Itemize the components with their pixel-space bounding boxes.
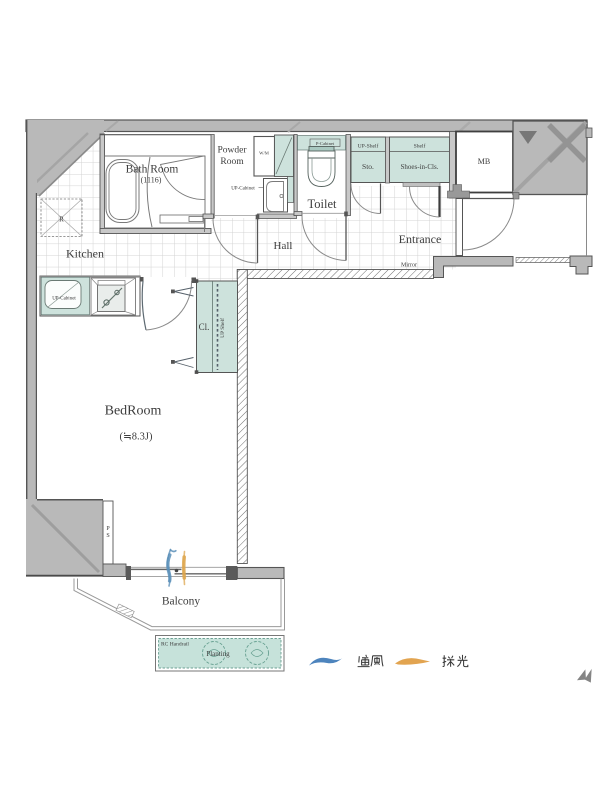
svg-text:Balcony: Balcony [162,596,201,608]
svg-text:(≒8.3J): (≒8.3J) [119,432,153,443]
svg-text:Powder: Powder [217,146,247,156]
svg-text:UP-Cabinet: UP-Cabinet [231,187,255,192]
svg-text:Shelf: Shelf [414,143,426,150]
svg-text:Hall: Hall [274,240,293,252]
svg-text:MB: MB [478,157,490,166]
svg-text:Sto.: Sto. [362,162,374,171]
svg-text:Planting: Planting [206,650,230,658]
svg-text:Room: Room [220,157,244,167]
svg-text:Toilet: Toilet [308,197,338,211]
svg-text:Cl.: Cl. [199,322,210,332]
svg-text:UP-Cabinet: UP-Cabinet [52,297,76,302]
svg-text:W/M: W/M [259,151,269,156]
svg-text:BedRoom: BedRoom [105,404,162,419]
svg-text:RC Handrail: RC Handrail [161,642,189,648]
svg-text:R: R [59,216,64,224]
svg-text:Mirror: Mirror [401,263,417,269]
svg-text:(1116): (1116) [141,176,162,185]
svg-text:UP-Shelf: UP-Shelf [358,143,379,150]
svg-text:Shoes-in-Cls.: Shoes-in-Cls. [401,163,439,171]
svg-text:UP Shelf: UP Shelf [219,318,226,338]
svg-text:S: S [106,533,109,539]
svg-text:Kitchen: Kitchen [66,247,104,261]
svg-text:Entrance: Entrance [399,232,442,246]
svg-text:Bath Room: Bath Room [126,164,179,176]
svg-text:P-Cabinet: P-Cabinet [316,141,335,146]
